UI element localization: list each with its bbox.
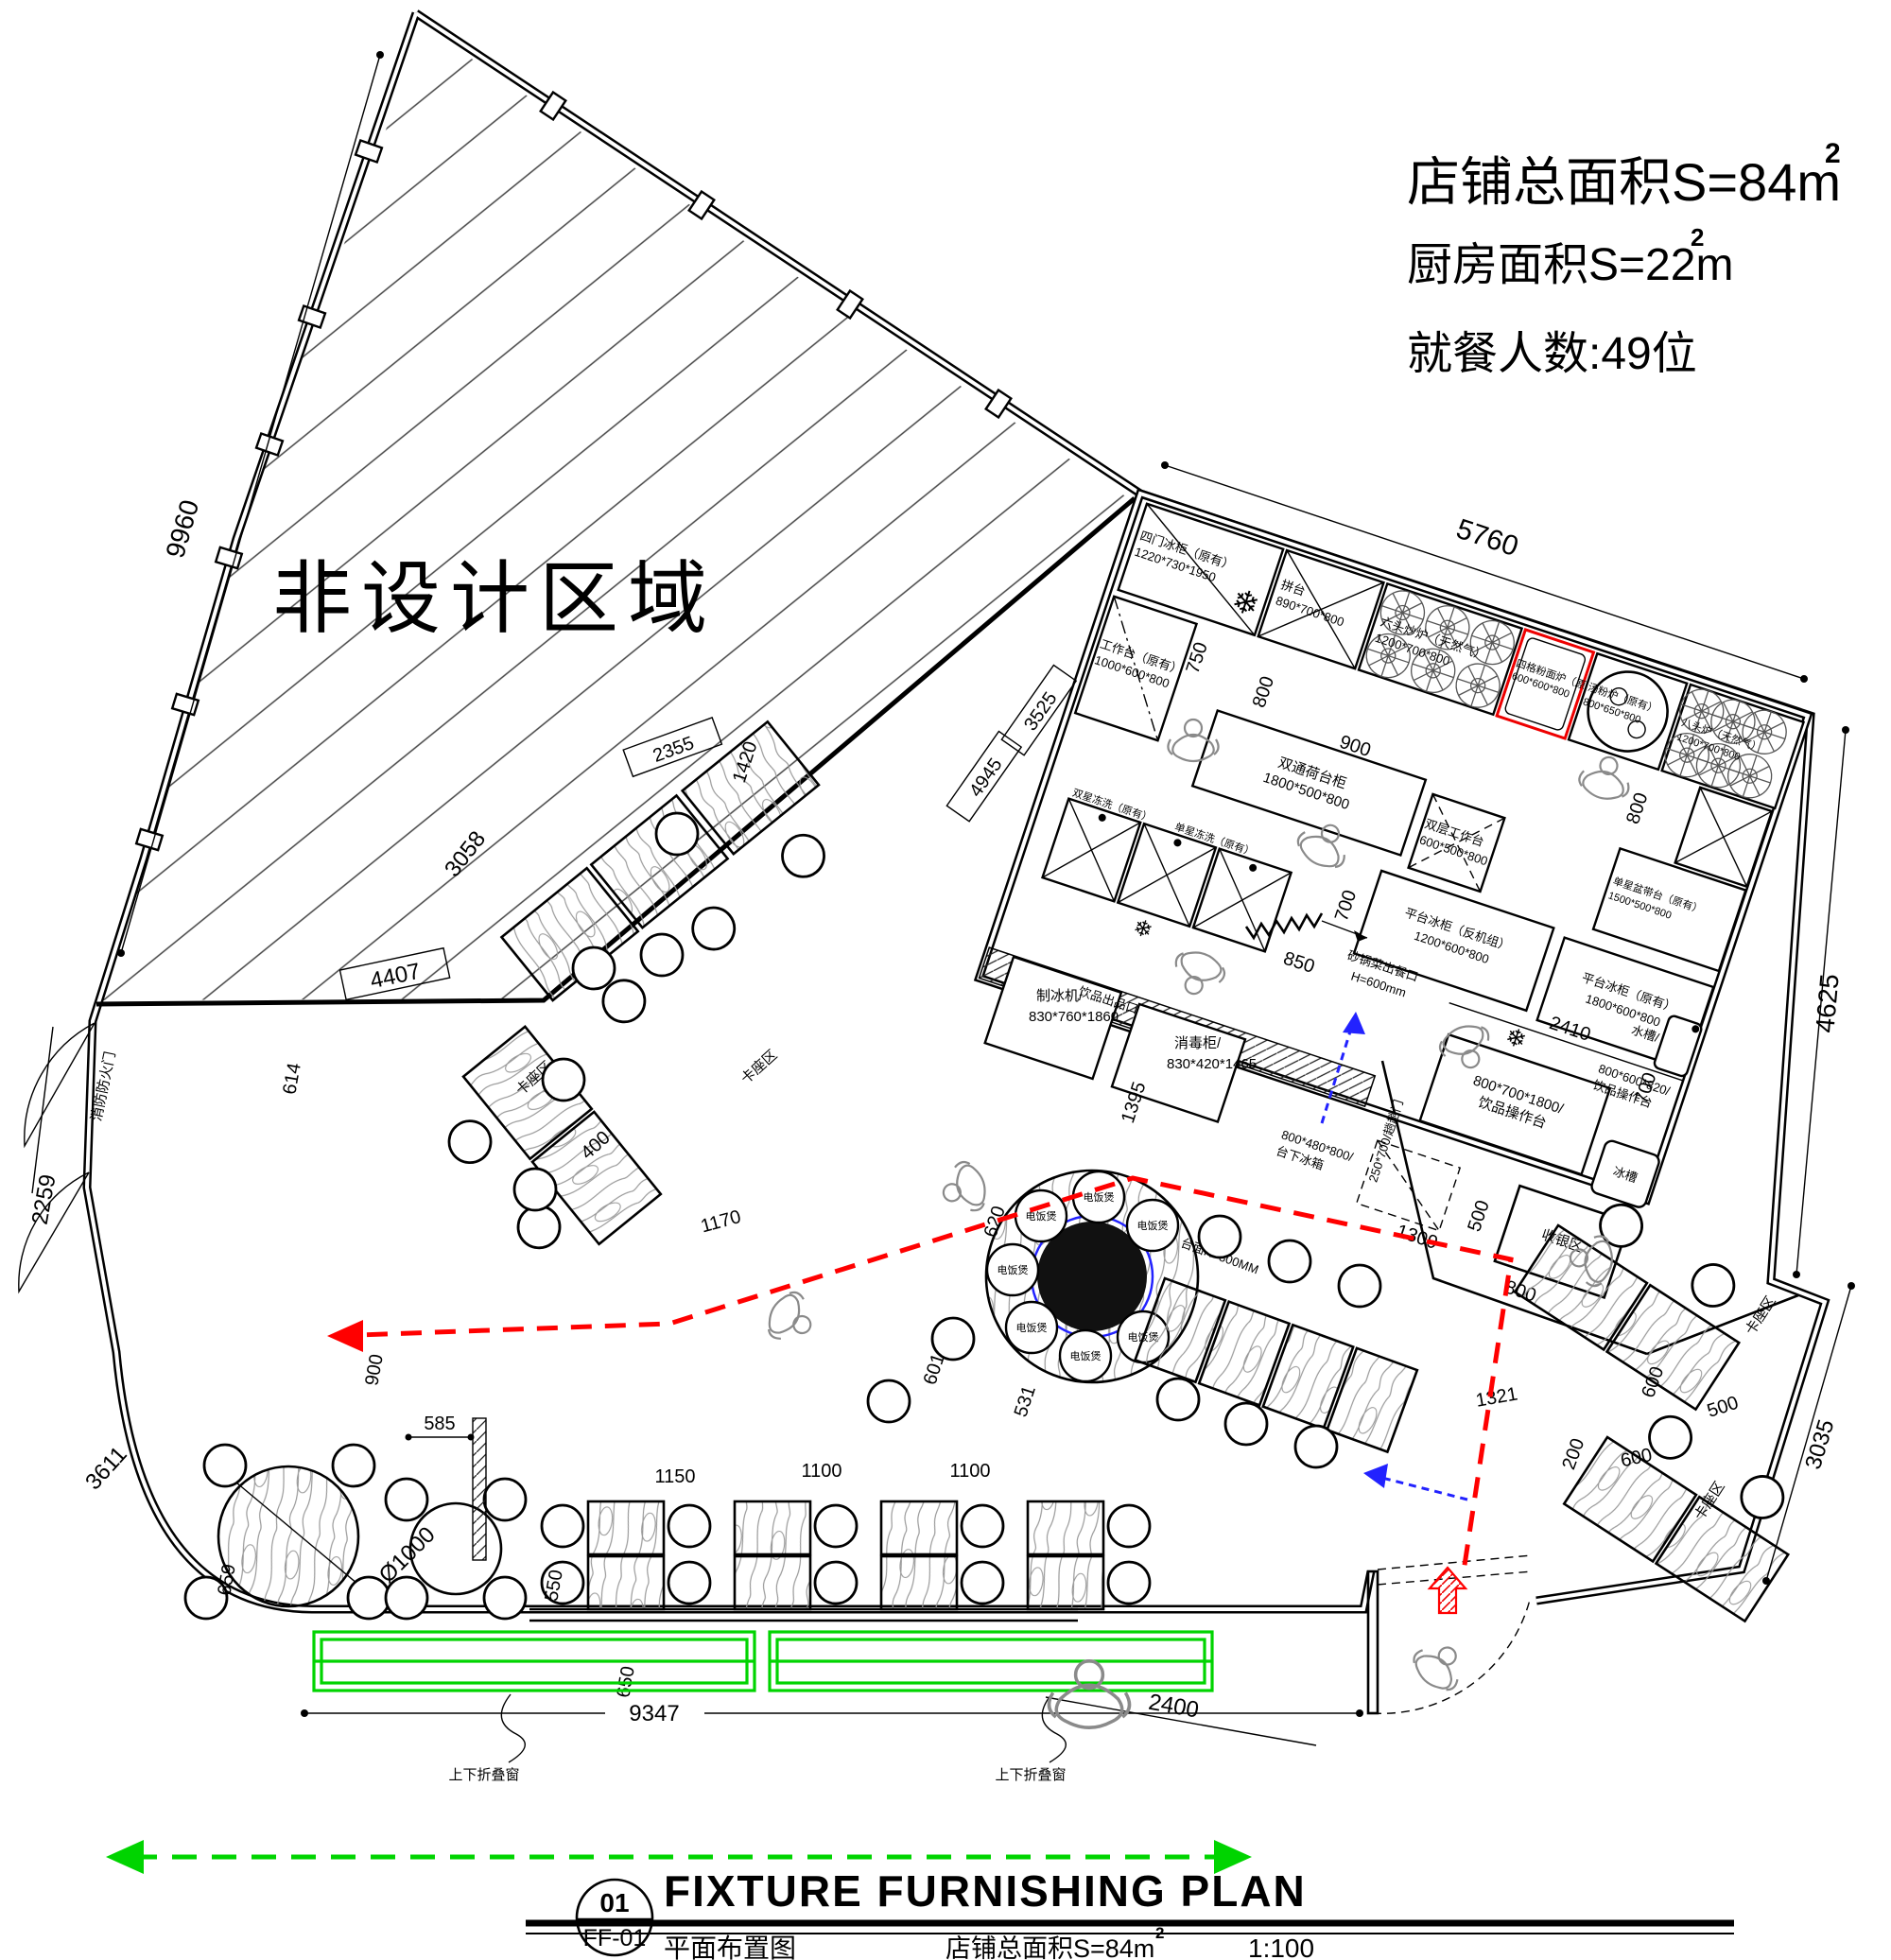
stool: [868, 1380, 910, 1422]
cad-drawing-canvas: 非设计区域 消防防火门 四门冰柜（原有） 1220*730*1950 ❄: [0, 0, 1891, 1960]
floor-plan-sheet: 非设计区域 消防防火门 四门冰柜（原有） 1220*730*1950 ❄: [0, 0, 1891, 1960]
dim-1170: 1170: [699, 1206, 743, 1237]
sterilizer-size: 830*420*1465: [1167, 1056, 1257, 1072]
dim-800: 800: [1622, 790, 1652, 827]
rice-cooker-label: 电饭煲: [1084, 1191, 1115, 1204]
title-area-note: 店铺总面积S=84m: [945, 1934, 1154, 1960]
dim-9960: 9960: [160, 496, 204, 561]
title-block: 01 FF-01 FIXTURE FURNISHING PLAN 平面布置图 店…: [526, 1866, 1734, 1960]
entry-arrow-icon: [1430, 1568, 1466, 1613]
dim-2400: 2400: [1147, 1690, 1201, 1724]
rice-cooker-label: 电饭煲: [1016, 1322, 1048, 1334]
dim-700: 700: [1331, 888, 1361, 925]
dim-3611: 3611: [80, 1442, 132, 1495]
booth-left-label2: 卡座区: [738, 1047, 781, 1087]
folding-window-label: 上下折叠窗: [448, 1766, 519, 1783]
stool: [656, 813, 698, 855]
beverage-counter: 800*700*1800/ 饮品操作台: [1420, 1034, 1610, 1174]
dim-1100b: 1100: [949, 1461, 990, 1482]
person-icon: [1407, 1634, 1472, 1698]
stool: [1733, 1468, 1791, 1526]
dim-2259: 2259: [27, 1172, 61, 1226]
sheet-number: FF-01: [583, 1925, 647, 1951]
title-area-note-sup: 2: [1155, 1924, 1164, 1942]
red-route-arrowhead: [327, 1320, 363, 1352]
dim-1150: 1150: [654, 1466, 695, 1487]
dim-9347-line: 9347: [301, 1701, 1363, 1726]
person-icon: [1168, 945, 1229, 1002]
non-design-area-label: 非设计区域: [272, 554, 717, 643]
blue-arrowhead-1: [1343, 1012, 1365, 1034]
sink-row: 双星冻洗（原有） 单星冻洗（原有） ❄: [1032, 785, 1295, 980]
ice-maker-size: 830*760*1860: [1029, 1009, 1119, 1025]
plan-title-cn: 平面布置图: [664, 1934, 796, 1960]
stool: [685, 899, 743, 958]
stool: [1295, 1426, 1337, 1467]
snowflake-icon: ❄: [1501, 1021, 1530, 1054]
stool: [543, 1059, 584, 1101]
dim-200: 200: [1558, 1436, 1588, 1473]
dim-850: 850: [1281, 948, 1318, 978]
snowflake-icon: ❄: [1130, 914, 1156, 945]
info-block: 店铺总面积S=84m 2 厨房面积S=22m 2 就餐人数:49位: [1407, 138, 1841, 379]
diagonal-tables: [1136, 1278, 1417, 1452]
kitchen-area-sup: 2: [1691, 223, 1704, 252]
dim-900b: 900: [361, 1353, 387, 1388]
detail-number: 01: [599, 1888, 629, 1917]
stool: [1199, 1216, 1240, 1258]
stool: [641, 934, 683, 976]
stool: [441, 1113, 499, 1171]
stool: [774, 826, 833, 885]
dim-1100: 1100: [801, 1461, 841, 1482]
stool: [1225, 1403, 1267, 1445]
dim-585: 585: [424, 1414, 455, 1434]
stool: [1269, 1240, 1310, 1282]
rice-cooker-label: 电饭煲: [1137, 1220, 1169, 1232]
work-table: 工作台（原有） 1000*600*800: [1075, 597, 1197, 741]
total-area-sup: 2: [1825, 138, 1841, 169]
rice-cooker-label: 电饭煲: [1026, 1210, 1057, 1223]
dim-9347: 9347: [629, 1701, 679, 1726]
dim-3035: 3035: [1800, 1416, 1839, 1472]
title-scale: 1:100: [1248, 1934, 1314, 1960]
dim-500: 500: [1464, 1198, 1493, 1235]
pass-cabinet: 双通荷台柜 1800*500*800: [1192, 711, 1426, 856]
dim-1321: 1321: [1474, 1383, 1519, 1411]
kitchen-area-text: 厨房面积S=22m: [1407, 240, 1733, 290]
stool: [573, 947, 615, 989]
stool: [514, 1169, 556, 1210]
booth-right-upper: [1515, 1179, 1769, 1409]
dim-601: 601: [920, 1351, 949, 1388]
total-area-text: 店铺总面积S=84m: [1407, 152, 1841, 212]
dim-5760: 5760: [1452, 513, 1522, 563]
dim-800: 800: [1249, 674, 1278, 711]
double-work-table: 双层工作台 600*500*800: [1409, 794, 1505, 892]
green-arrowhead-left: [106, 1840, 144, 1874]
folding-windows: 上下折叠窗 上下折叠窗: [314, 1632, 1212, 1783]
dim-4625: 4625: [1810, 973, 1844, 1034]
bottom-tables: [529, 1501, 1150, 1621]
person-icon: [935, 1157, 992, 1219]
blue-arrowhead-2: [1363, 1464, 1388, 1488]
folding-window-label2: 上下折叠窗: [995, 1766, 1066, 1783]
stool: [1684, 1257, 1742, 1314]
dim-531: 531: [1011, 1383, 1040, 1420]
dim-500b: 500: [1705, 1393, 1742, 1422]
wok-range: 六头炒炉（天然气） 1200*700*800: [1359, 583, 1522, 714]
partition-screen: [473, 1418, 486, 1560]
rice-cooker-label: 电饭煲: [1070, 1350, 1102, 1362]
person-icon: [1049, 1661, 1129, 1727]
stool: [1157, 1379, 1199, 1420]
person-icon: [761, 1286, 823, 1350]
fire-door-arcs: [19, 1023, 95, 1292]
rice-cooker-label: 电饭煲: [998, 1264, 1029, 1276]
seat-count-text: 就餐人数:49位: [1407, 329, 1697, 379]
plan-title-en: FIXTURE FURNISHING PLAN: [664, 1866, 1307, 1916]
stool: [1339, 1265, 1380, 1307]
stool: [932, 1318, 974, 1360]
dim-614: 614: [279, 1062, 304, 1097]
sterilizer-name: 消毒柜/: [1174, 1035, 1222, 1051]
